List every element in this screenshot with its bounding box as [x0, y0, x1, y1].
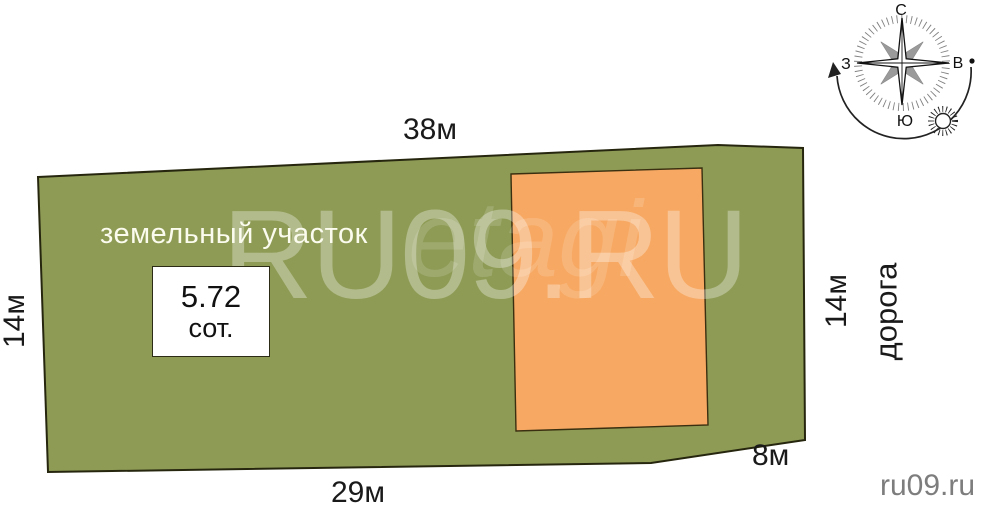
land-plot-title: земельный участок [100, 218, 368, 251]
compass-rose: С В Ю З [828, 2, 975, 139]
watermark-large: RU09.RU [222, 192, 747, 318]
compass-label-north: С [895, 2, 907, 19]
area-value: 5.72 [153, 281, 269, 312]
dimension-notch-label: 8м [752, 441, 789, 471]
area-box: 5.72 сот. [152, 266, 270, 357]
dimension-top-label: 38м [403, 115, 457, 145]
dimension-bottom-label: 29м [331, 478, 385, 508]
dimension-right-label: 14м [822, 266, 852, 336]
sunrise-dot [969, 58, 974, 63]
land-plot-diagram: С В Ю З etagi RU09.RU земельный участок … [0, 0, 983, 511]
watermark-corner: ru09.ru [880, 469, 975, 503]
compass-label-west: З [841, 56, 851, 73]
compass-label-south: Ю [897, 113, 913, 130]
sun-path-arrowhead-icon [828, 62, 841, 78]
road-label: дорога [871, 257, 902, 367]
area-unit: сот. [153, 315, 269, 342]
sun-icon [931, 109, 955, 133]
dimension-left-label: 14м [0, 286, 30, 356]
compass-label-east: В [953, 55, 964, 72]
